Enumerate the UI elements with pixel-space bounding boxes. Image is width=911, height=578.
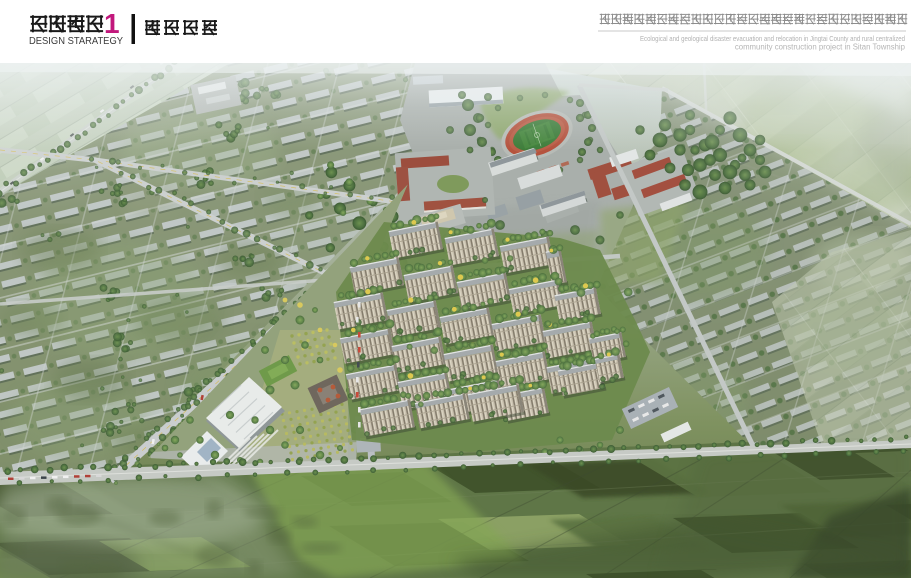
svg-text:1: 1 — [104, 8, 120, 39]
svg-text:community construction project: community construction project in Sitan … — [735, 43, 906, 52]
svg-text:DESIGN STARATEGY: DESIGN STARATEGY — [29, 36, 123, 47]
